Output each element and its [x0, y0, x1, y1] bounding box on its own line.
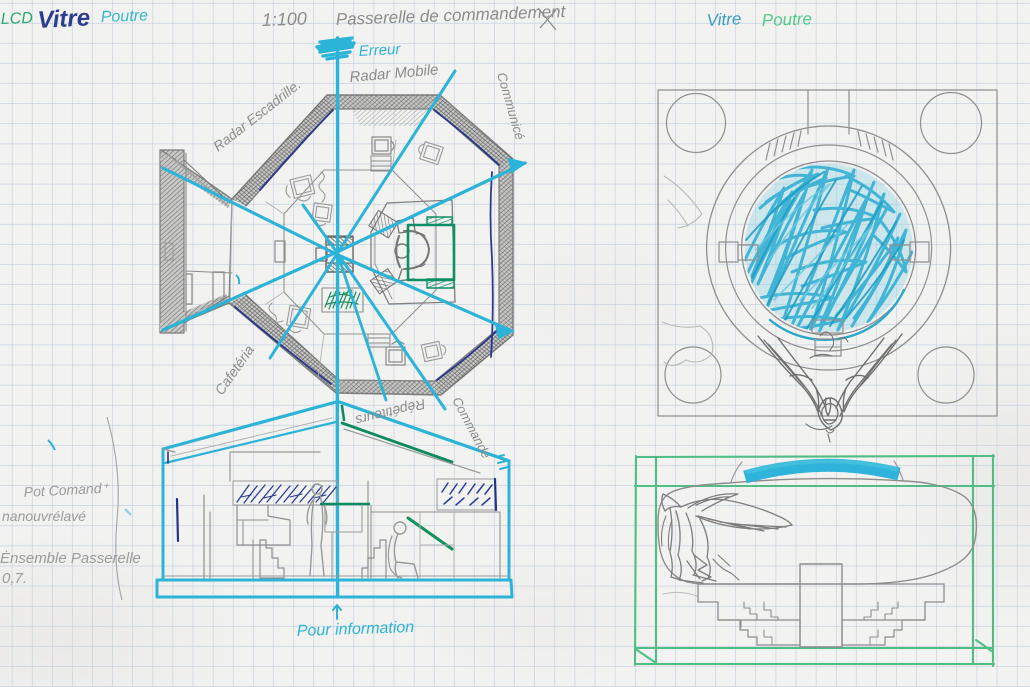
svg-text:Poutre: Poutre: [761, 9, 812, 30]
svg-text:Vitre: Vitre: [706, 9, 742, 30]
svg-text:Erreur: Erreur: [358, 41, 402, 60]
svg-text:LCD: LCD: [1, 10, 34, 28]
svg-text:nanouvrélavé: nanouvrélavé: [2, 508, 86, 524]
svg-text:Ėnsemble Passerelle: Ėnsemble Passerelle: [0, 550, 141, 567]
svg-text:0,7.: 0,7.: [2, 570, 27, 587]
svg-text:Vitre: Vitre: [37, 4, 91, 34]
svg-text:Poutre: Poutre: [101, 7, 149, 26]
svg-text:1:100: 1:100: [261, 8, 307, 30]
